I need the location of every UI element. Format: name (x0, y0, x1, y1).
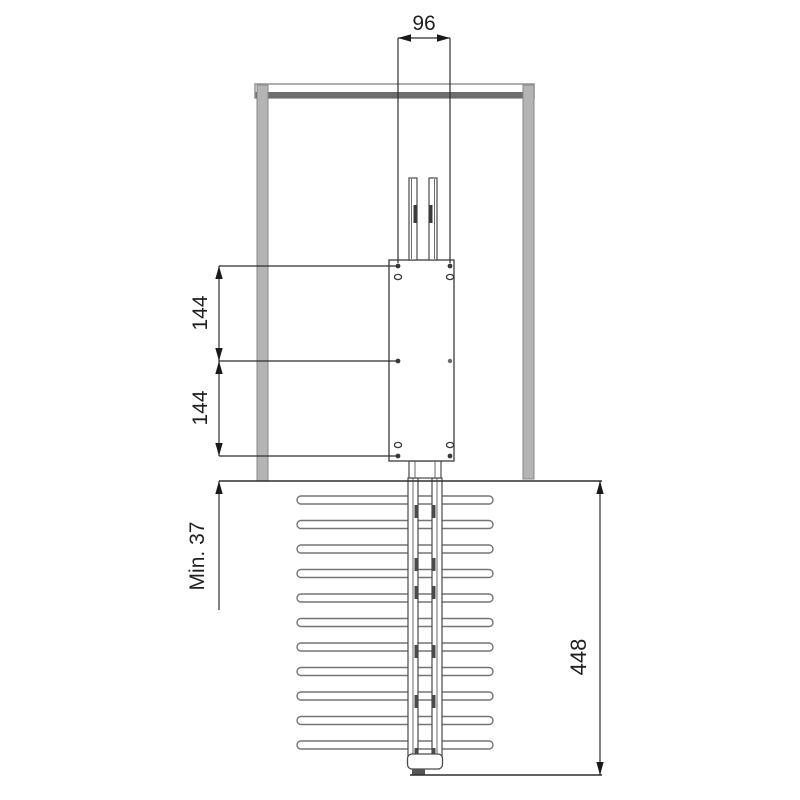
trouser-rack (297, 461, 493, 775)
prong-right-tick (429, 205, 432, 223)
mounting-plate (389, 260, 454, 461)
rack-bar (297, 692, 493, 700)
dimension-min-37: Min. 37 (186, 481, 223, 610)
slide-bottom-cap (408, 754, 443, 769)
arrowhead-down (215, 348, 222, 361)
rack-bar (297, 496, 493, 504)
arrowhead-up (215, 361, 222, 374)
slide-collar (409, 461, 441, 478)
dimension-label-448: 448 (566, 639, 591, 676)
dimension-96: 96 (398, 12, 450, 263)
wardrobe-pullout-rack-drawing: 96 144 144 Min. 37 448 (0, 0, 800, 800)
dimension-label-144-upper: 144 (189, 295, 212, 330)
rack-bar (297, 741, 493, 749)
slide-bottom-stub (412, 769, 425, 775)
arrowhead-down (596, 762, 603, 775)
rack-bar (297, 594, 493, 602)
rack-bar (297, 643, 493, 651)
rack-bar (297, 545, 493, 553)
arrowhead-down (215, 443, 222, 456)
frame-left-stile (257, 85, 268, 481)
arrowhead-up (215, 481, 222, 494)
frame-top-rail-band (256, 93, 533, 98)
technical-drawing-page: 96 144 144 Min. 37 448 (0, 0, 800, 800)
hanging-prongs (409, 178, 437, 260)
rack-bar (297, 619, 493, 627)
arrowhead-up (596, 481, 603, 494)
rack-bar (297, 668, 493, 676)
dimension-label-96: 96 (412, 12, 435, 35)
rack-bar (297, 570, 493, 578)
dimension-448: 448 (566, 481, 604, 775)
dimension-label-min-37: Min. 37 (186, 522, 209, 591)
dimension-144-chain: 144 144 (189, 266, 398, 456)
arrowhead-up (215, 266, 222, 279)
rack-bar (297, 717, 493, 725)
rack-bar (297, 521, 493, 529)
arrowhead-right (437, 34, 450, 42)
frame-right-stile (523, 85, 534, 479)
prong-left-tick (414, 205, 417, 223)
arrowhead-left (398, 34, 411, 42)
dimension-label-144-lower: 144 (189, 390, 212, 425)
